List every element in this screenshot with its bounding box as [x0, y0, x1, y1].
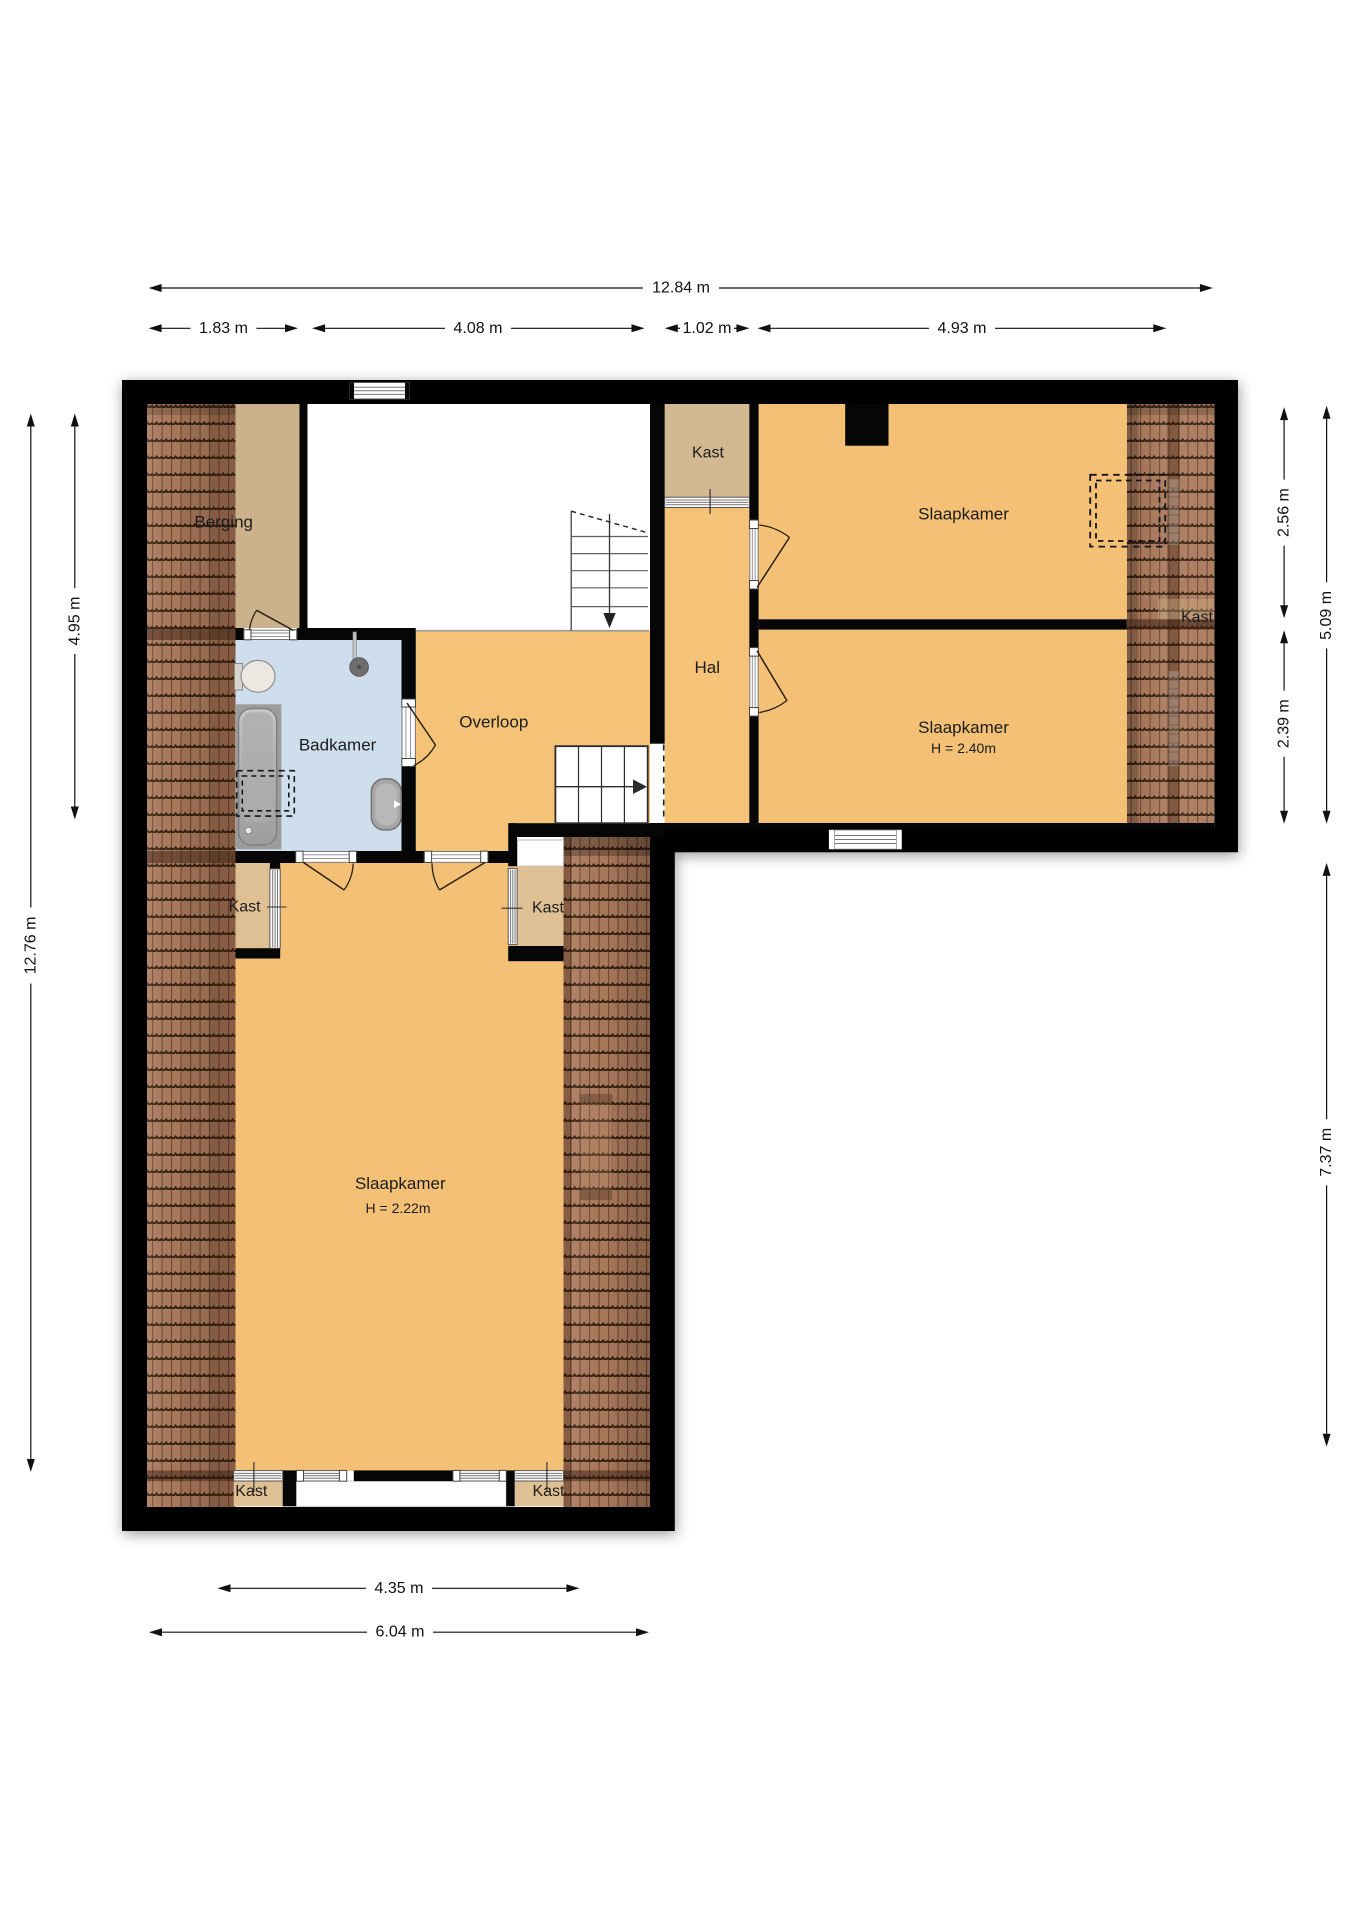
svg-text:H = 2.22m: H = 2.22m: [366, 1200, 431, 1216]
svg-text:Slaapkamer: Slaapkamer: [355, 1174, 446, 1193]
svg-text:4.08 m: 4.08 m: [454, 320, 503, 337]
svg-text:1.02 m: 1.02 m: [683, 320, 732, 337]
svg-text:Hal: Hal: [695, 658, 721, 677]
svg-text:4.95 m: 4.95 m: [66, 597, 83, 646]
svg-text:Kast: Kast: [692, 444, 725, 461]
svg-text:6.04 m: 6.04 m: [376, 1624, 425, 1641]
svg-text:Slaapkamer: Slaapkamer: [918, 718, 1009, 737]
svg-text:4.35 m: 4.35 m: [375, 1580, 424, 1597]
svg-text:Slaapkamer: Slaapkamer: [918, 505, 1009, 524]
svg-text:4.93 m: 4.93 m: [938, 320, 987, 337]
svg-text:5.09 m: 5.09 m: [1318, 591, 1335, 640]
svg-text:H = 2.40m: H = 2.40m: [931, 740, 996, 756]
svg-text:2.56 m: 2.56 m: [1276, 488, 1293, 537]
svg-text:Berging: Berging: [194, 512, 253, 531]
svg-text:2.39 m: 2.39 m: [1276, 699, 1293, 748]
svg-text:12.76 m: 12.76 m: [22, 917, 39, 975]
svg-text:1.83 m: 1.83 m: [199, 320, 248, 337]
svg-text:Kast: Kast: [235, 1483, 268, 1500]
svg-text:Kast: Kast: [1181, 609, 1214, 626]
svg-text:Kast: Kast: [229, 899, 262, 916]
svg-text:7.37 m: 7.37 m: [1318, 1128, 1335, 1177]
svg-text:Kast: Kast: [532, 900, 565, 917]
svg-text:12.84 m: 12.84 m: [652, 280, 710, 297]
svg-text:Overloop: Overloop: [459, 713, 528, 732]
svg-text:Kast: Kast: [532, 1483, 565, 1500]
svg-text:Badkamer: Badkamer: [299, 735, 377, 754]
